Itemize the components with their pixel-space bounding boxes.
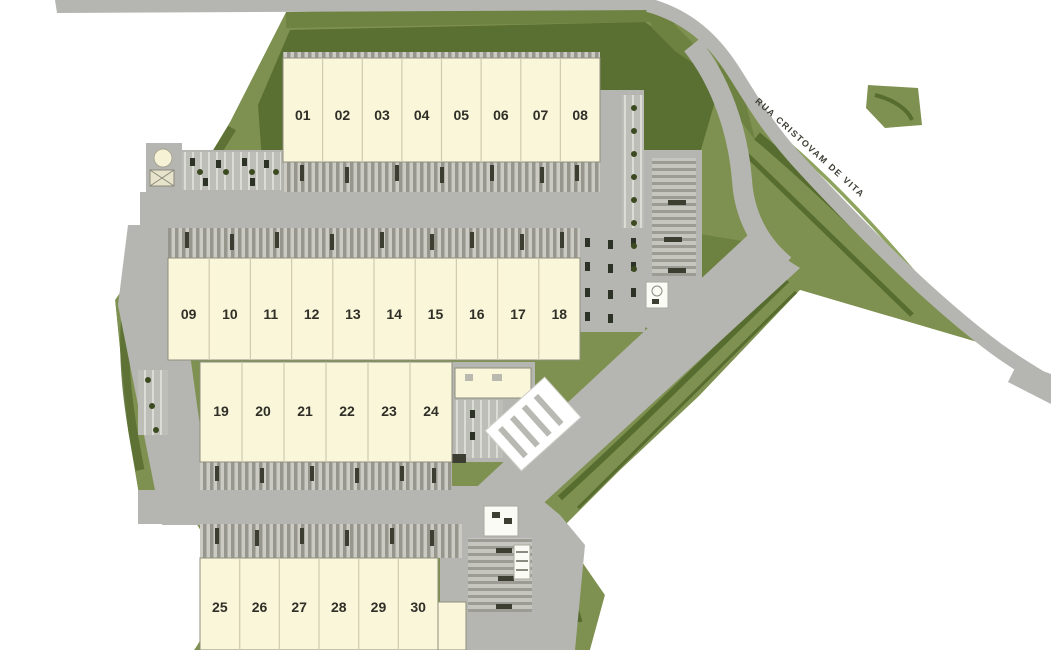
unit-label: 15 xyxy=(428,306,444,322)
unit-label: 24 xyxy=(423,403,439,419)
unit-label: 10 xyxy=(222,306,238,322)
unit-label: 20 xyxy=(255,403,271,419)
unit-label: 27 xyxy=(291,599,307,615)
unit-label: 07 xyxy=(533,107,549,123)
unit-label: 16 xyxy=(469,306,485,322)
unit-label: 18 xyxy=(551,306,567,322)
unit-label: 05 xyxy=(454,107,470,123)
unit-label: 04 xyxy=(414,107,430,123)
unit-label: 06 xyxy=(493,107,509,123)
unit-label: 14 xyxy=(386,306,402,322)
unit-label: 03 xyxy=(374,107,390,123)
unit-label: 02 xyxy=(335,107,351,123)
unit-label: 22 xyxy=(339,403,355,419)
unit-label: 19 xyxy=(213,403,229,419)
unit-label: 29 xyxy=(371,599,387,615)
unit-label: 11 xyxy=(263,306,278,322)
site-plan: 0102030405060708 09101112131415161718 19… xyxy=(0,0,1051,650)
unit-label: 17 xyxy=(510,306,526,322)
unit-label: 21 xyxy=(297,403,313,419)
gatehouse-entrance xyxy=(646,282,668,308)
building-4-unit-labels: 252627282930 xyxy=(200,584,438,630)
unit-label: 23 xyxy=(381,403,397,419)
building-1-unit-labels: 0102030405060708 xyxy=(283,92,600,138)
unit-label: 26 xyxy=(252,599,268,615)
unit-label: 25 xyxy=(212,599,228,615)
building-3-unit-labels: 192021222324 xyxy=(200,388,452,434)
unit-label: 30 xyxy=(410,599,426,615)
unit-label: 28 xyxy=(331,599,347,615)
unit-label: 01 xyxy=(295,107,311,123)
unit-label: 13 xyxy=(345,306,361,322)
unit-label: 09 xyxy=(181,306,197,322)
unit-label: 08 xyxy=(572,107,588,123)
support-building xyxy=(455,368,531,398)
building-2-unit-labels: 09101112131415161718 xyxy=(168,291,580,337)
unit-label: 12 xyxy=(304,306,320,322)
